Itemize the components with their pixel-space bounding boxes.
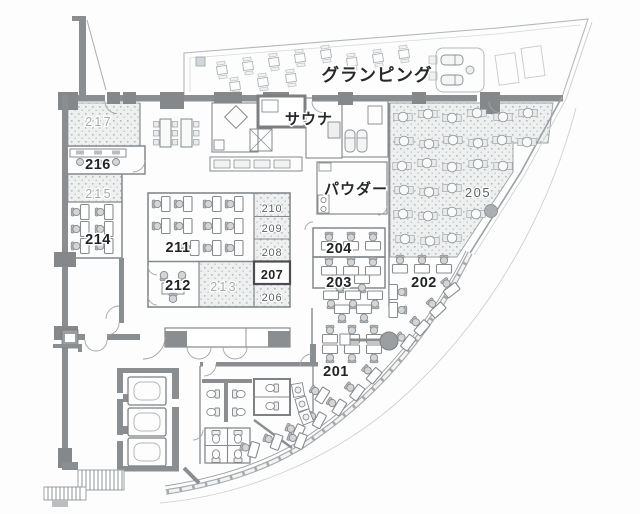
area-label-powder: パウダー <box>324 180 388 198</box>
sauna-rooms <box>210 96 388 171</box>
room-label-204: 204 <box>326 241 352 257</box>
room-label-205: 205 <box>465 185 491 200</box>
floor-plan-canvas: グランピング サウナ パウダー 217 216 215 214 211 212 … <box>0 0 640 514</box>
room-label-211: 211 <box>166 240 191 256</box>
room-202-desks <box>389 255 460 351</box>
room-label-214: 214 <box>85 232 111 248</box>
floor-plan: グランピング サウナ パウダー 217 216 215 214 211 212 … <box>0 0 640 514</box>
room-label-209: 209 <box>262 223 283 235</box>
glamping-deck <box>184 19 592 99</box>
room-label-201: 201 <box>323 364 349 380</box>
room-label-213: 213 <box>210 280 237 294</box>
room-label-202: 202 <box>411 275 437 291</box>
room-label-203: 203 <box>326 275 352 291</box>
meeting-tables <box>154 119 200 147</box>
room-label-215: 215 <box>85 187 112 201</box>
stipple-areas <box>68 103 553 307</box>
room-label-208: 208 <box>262 247 283 259</box>
room-label-210: 210 <box>262 203 283 215</box>
open-desks-below-203 <box>324 291 383 323</box>
room-label-212: 212 <box>165 278 191 294</box>
lounge-beds <box>128 377 166 466</box>
room-205-floor <box>390 103 553 257</box>
stairs <box>44 470 124 507</box>
corridor-storage <box>165 328 290 347</box>
column-205 <box>485 205 498 218</box>
room-label-206: 206 <box>262 292 283 304</box>
room-label-217: 217 <box>85 115 112 129</box>
room-label-216: 216 <box>85 157 111 173</box>
room-label-207: 207 <box>261 268 283 282</box>
wall-spur <box>72 16 106 96</box>
area-label-glamping: グランピング <box>322 65 433 85</box>
area-label-sauna: サウナ <box>285 111 333 128</box>
